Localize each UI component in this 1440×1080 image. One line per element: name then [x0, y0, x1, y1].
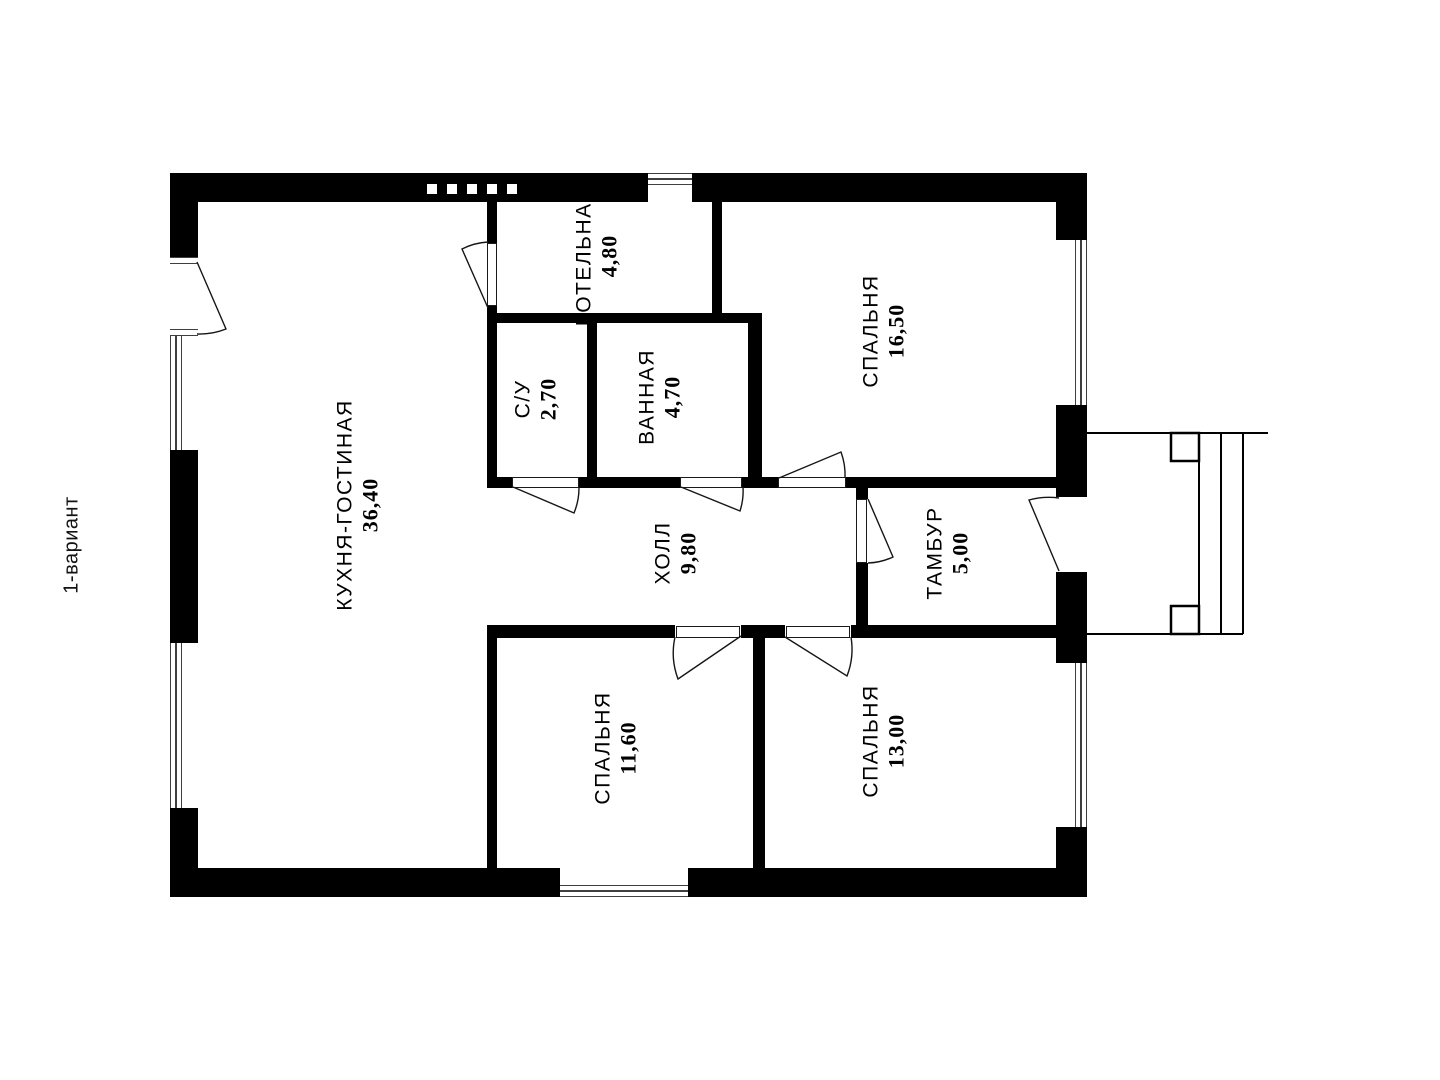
- room-area: 9,80: [676, 522, 702, 585]
- room-label-boiler: КОТЕЛЬНАЯ 4,80: [572, 186, 623, 327]
- room-name: СПАЛЬНЯ: [859, 274, 884, 387]
- room-area: 11,60: [616, 691, 642, 804]
- room-name: СПАЛЬНЯ: [859, 684, 884, 797]
- room-label-hall: ХОЛЛ 9,80: [651, 522, 702, 585]
- room-area: 4,80: [597, 186, 623, 327]
- variant-label: 1-вариант: [61, 496, 84, 593]
- room-label-bathroom: ВАННАЯ 4,70: [635, 349, 686, 445]
- room-area: 13,00: [884, 684, 910, 797]
- room-name: КУХНЯ-ГОСТИНАЯ: [333, 399, 358, 610]
- door-swing-bedroom2: [673, 636, 741, 679]
- room-label-bedroom3: СПАЛЬНЯ 13,00: [859, 684, 910, 797]
- room-name: КОТЕЛЬНАЯ: [572, 186, 597, 327]
- door-swing-bedroom3: [785, 637, 852, 676]
- room-label-kitchen-living: КУХНЯ-ГОСТИНАЯ 36,40: [333, 399, 384, 610]
- room-area: 2,70: [536, 378, 562, 421]
- room-area: 4,70: [660, 349, 686, 445]
- door-swing-bathroom: [681, 487, 743, 511]
- door-swing-vestibule: [868, 499, 893, 563]
- door-swing-boiler: [462, 242, 488, 308]
- room-area: 36,40: [358, 399, 384, 610]
- floor-plan: 1-вариант КУХНЯ-ГОСТИНАЯ 36,40 КОТЕЛЬНАЯ…: [0, 0, 1440, 1080]
- room-name: ХОЛЛ: [651, 522, 676, 585]
- door-swing-terrace: [197, 262, 226, 334]
- door-swing-bedroom1: [779, 452, 845, 478]
- room-area: 5,00: [948, 506, 974, 599]
- room-name: СПАЛЬНЯ: [591, 691, 616, 804]
- room-label-bedroom1: СПАЛЬНЯ 16,50: [859, 274, 910, 387]
- room-label-bedroom2: СПАЛЬНЯ 11,60: [591, 691, 642, 804]
- room-area: 16,50: [884, 274, 910, 387]
- porch-post-top: [1171, 433, 1199, 461]
- plan-linework: [0, 0, 1440, 1080]
- room-label-vestibule: ТАМБУР 5,00: [923, 506, 974, 599]
- room-name: С/У: [511, 378, 536, 421]
- door-swing-wc: [513, 487, 579, 513]
- room-label-wc: С/У 2,70: [511, 378, 562, 421]
- room-name: ВАННАЯ: [635, 349, 660, 445]
- porch-post-bottom: [1171, 606, 1199, 634]
- door-swing-entrance: [1029, 497, 1059, 571]
- room-name: ТАМБУР: [923, 506, 948, 599]
